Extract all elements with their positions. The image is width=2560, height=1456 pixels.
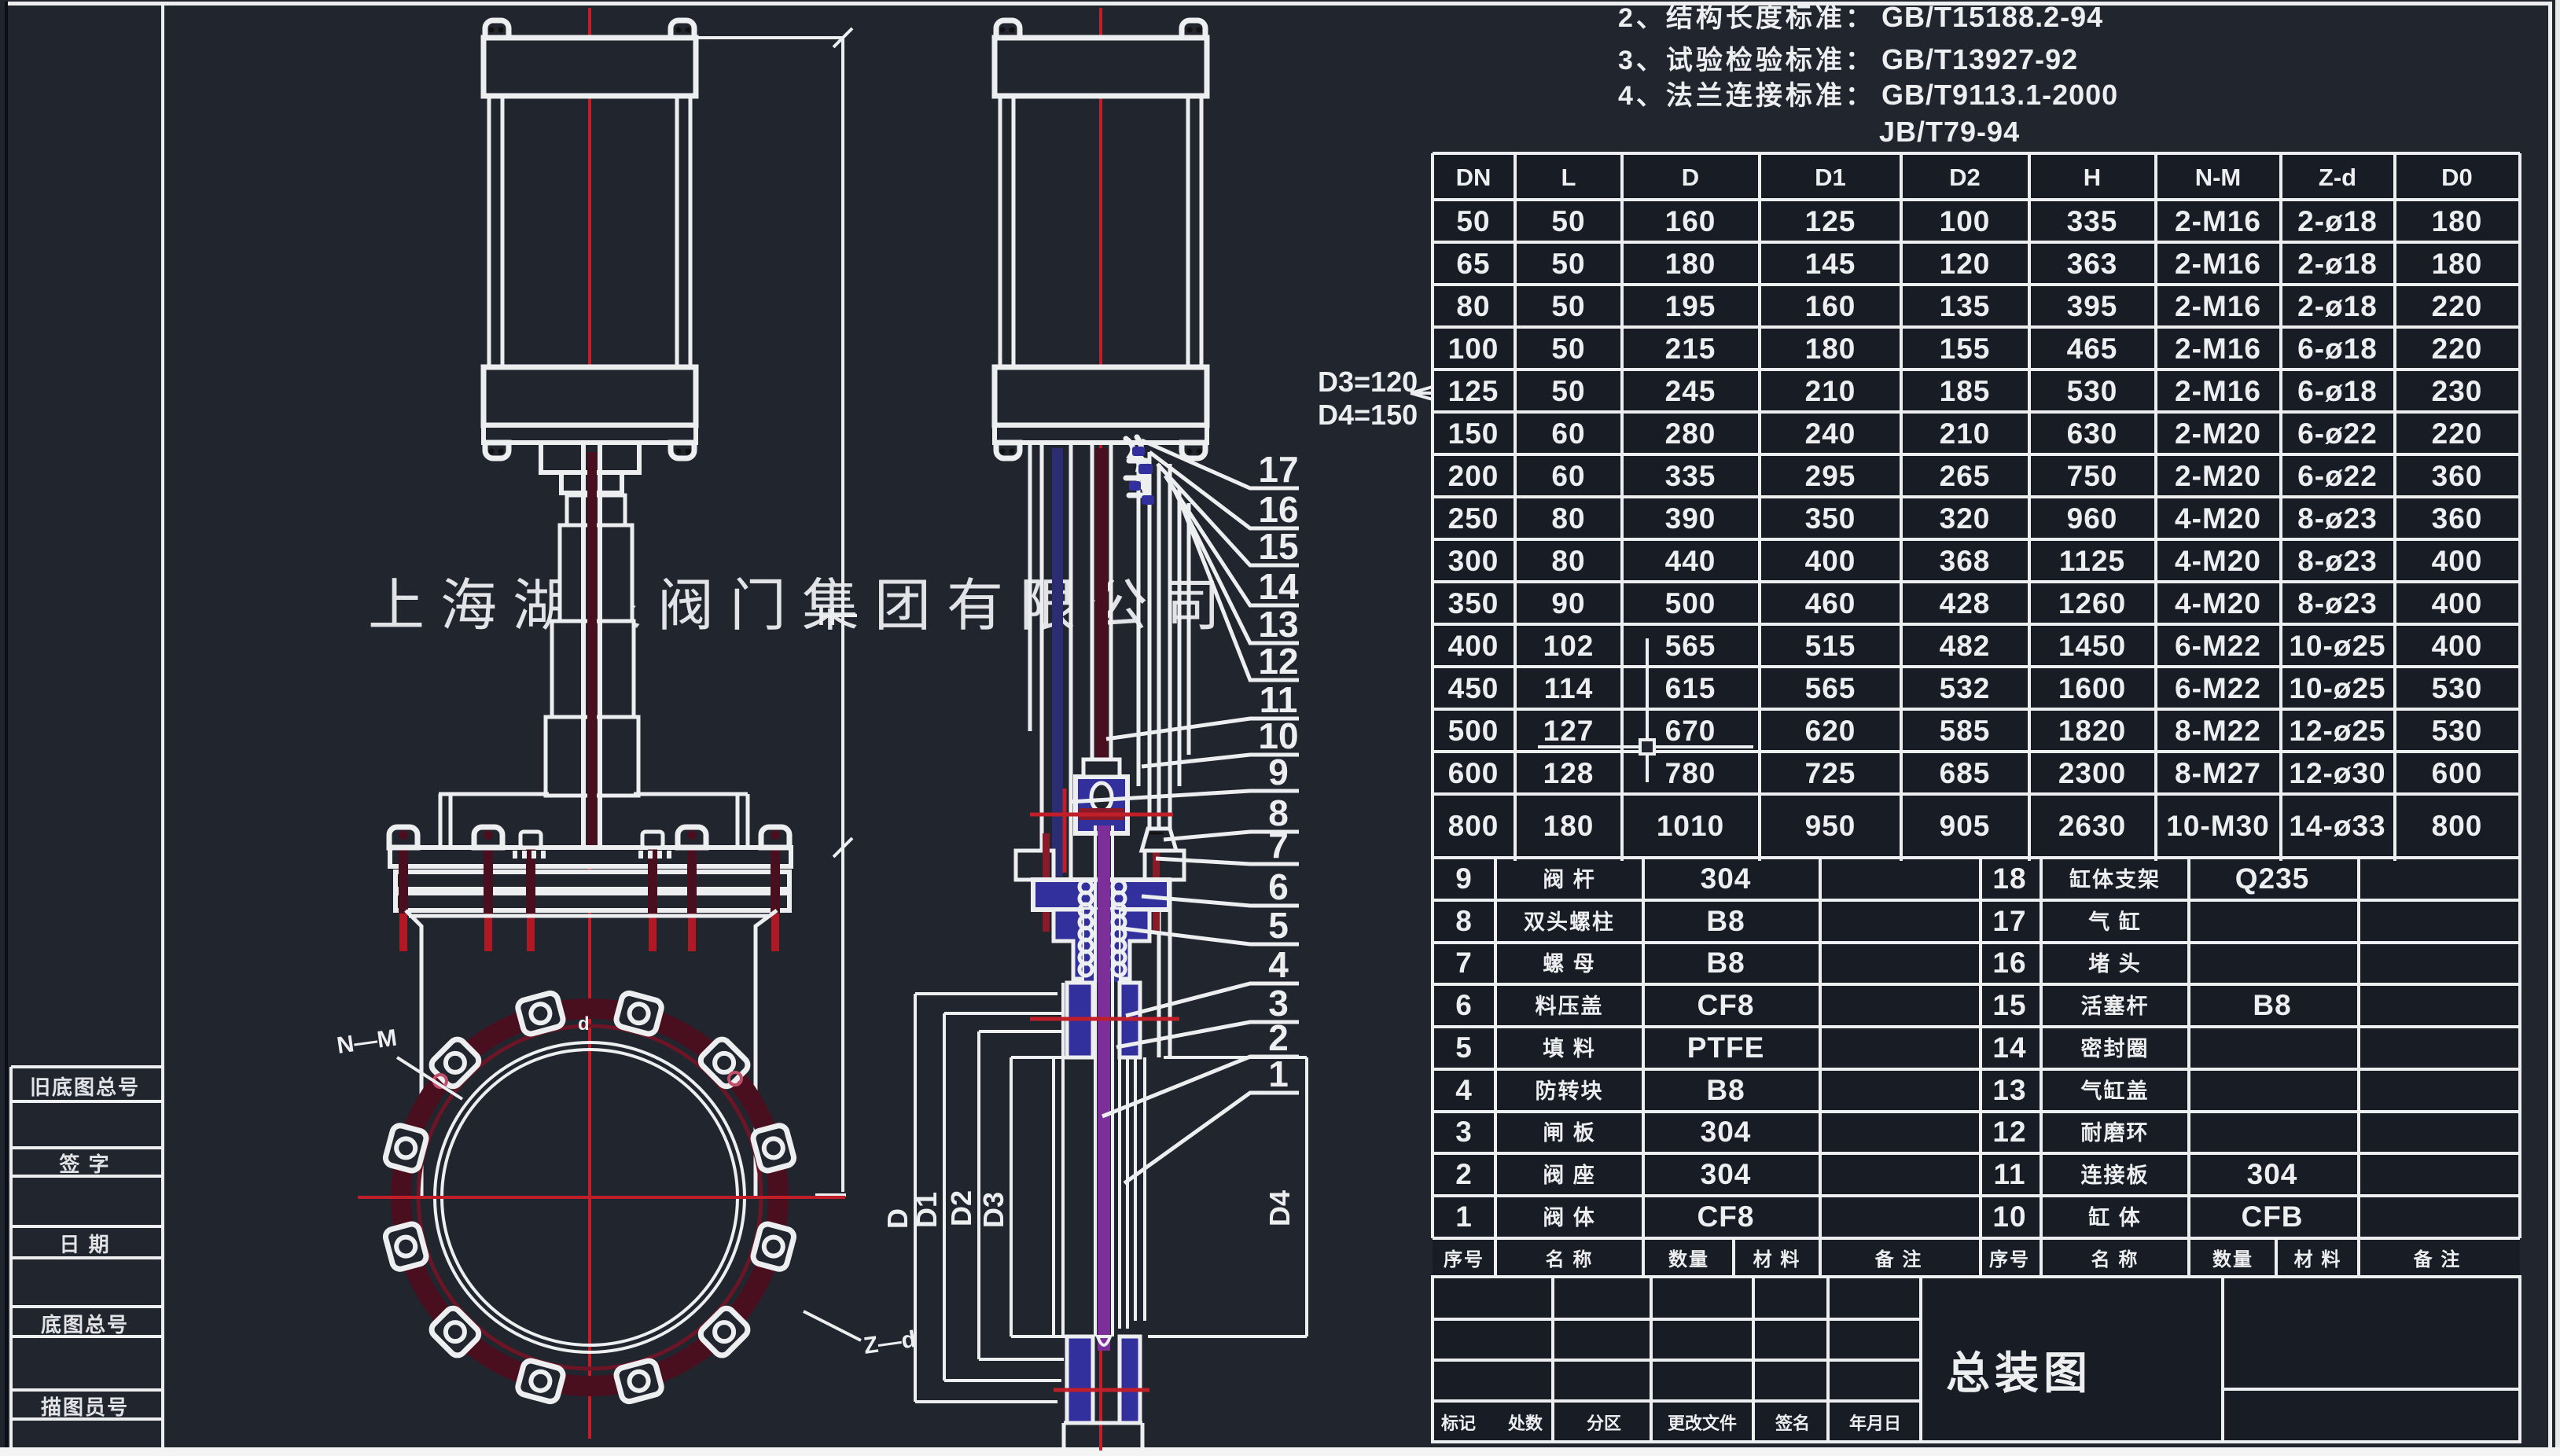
svg-text:B8: B8 [1706,947,1745,979]
svg-text:390: 390 [1665,502,1716,535]
svg-text:8-M22: 8-M22 [2175,715,2261,747]
svg-text:4: 4 [1455,1074,1473,1106]
svg-text:160: 160 [1805,290,1856,322]
svg-text:335: 335 [1665,460,1716,492]
svg-text:活塞杆: 活塞杆 [2081,994,2150,1018]
svg-text:210: 210 [1805,375,1856,407]
svg-text:D3: D3 [977,1192,1010,1228]
svg-text:3: 3 [1455,1116,1473,1148]
svg-text:4-M20: 4-M20 [2175,545,2261,577]
svg-text:气 缸: 气 缸 [2087,910,2142,934]
svg-text:50: 50 [1456,205,1490,237]
svg-text:6: 6 [1268,866,1289,907]
svg-text:1: 1 [1455,1200,1473,1233]
svg-text:4-M20: 4-M20 [2175,502,2261,535]
svg-text:125: 125 [1448,375,1499,407]
svg-text:60: 60 [1551,417,1585,450]
svg-text:年月日: 年月日 [1849,1414,1901,1433]
svg-text:处数: 处数 [1507,1414,1543,1433]
svg-text:160: 160 [1665,205,1716,237]
svg-text:双头螺柱: 双头螺柱 [1524,910,1615,934]
svg-text:120: 120 [1940,248,1991,280]
svg-text:填 料: 填 料 [1543,1037,1596,1061]
svg-text:565: 565 [1665,630,1716,662]
svg-text:8-M27: 8-M27 [2175,757,2261,789]
svg-text:565: 565 [1805,672,1856,704]
svg-text:800: 800 [1448,810,1499,842]
svg-text:数量: 数量 [2212,1249,2253,1270]
svg-text:905: 905 [1940,810,1991,842]
svg-text:685: 685 [1940,757,1991,789]
svg-text:800: 800 [2432,810,2483,842]
svg-text:2-ø18: 2-ø18 [2297,248,2378,280]
svg-text:515: 515 [1805,630,1856,662]
svg-text:80: 80 [1551,502,1585,535]
svg-text:12-ø25: 12-ø25 [2289,715,2385,747]
svg-text:265: 265 [1940,460,1991,492]
svg-text:750: 750 [2067,460,2118,492]
svg-text:428: 428 [1940,587,1991,620]
svg-text:2-M16: 2-M16 [2175,375,2261,407]
svg-text:1450: 1450 [2058,630,2126,662]
svg-text:180: 180 [1665,248,1716,280]
svg-text:3、试验检验标准：: 3、试验检验标准： [1618,45,1875,75]
svg-text:600: 600 [1448,757,1499,789]
svg-text:135: 135 [1940,290,1991,322]
svg-text:12: 12 [1258,641,1298,682]
svg-text:D: D [881,1208,914,1229]
svg-text:L: L [1561,164,1576,191]
svg-text:Q235: Q235 [2235,862,2310,895]
svg-text:B8: B8 [1706,1074,1745,1106]
svg-text:482: 482 [1940,630,1991,662]
svg-text:底图总号: 底图总号 [41,1313,129,1337]
svg-text:B8: B8 [1706,905,1745,937]
svg-text:125: 125 [1805,205,1856,237]
svg-text:350: 350 [1448,587,1499,620]
svg-text:395: 395 [2067,290,2118,322]
svg-text:GB/T15188.2-94: GB/T15188.2-94 [1881,1,2103,33]
svg-text:D4: D4 [1263,1190,1296,1226]
svg-text:10-M30: 10-M30 [2166,810,2269,842]
svg-text:368: 368 [1940,545,1991,577]
svg-text:2-M16: 2-M16 [2175,333,2261,365]
svg-text:320: 320 [1940,502,1991,535]
svg-text:950: 950 [1805,810,1856,842]
svg-text:缸体支架: 缸体支架 [2069,867,2161,892]
svg-text:签 字: 签 字 [59,1153,110,1176]
svg-text:1125: 1125 [2059,545,2125,577]
svg-text:155: 155 [1940,333,1991,365]
svg-text:65: 65 [1456,248,1490,280]
svg-text:4-M20: 4-M20 [2175,587,2261,620]
svg-text:195: 195 [1665,290,1716,322]
svg-text:数量: 数量 [1668,1249,1709,1270]
svg-text:100: 100 [1448,333,1499,365]
svg-text:14: 14 [1992,1031,2026,1064]
svg-text:耐磨环: 耐磨环 [2081,1121,2150,1145]
svg-text:2-M16: 2-M16 [2175,248,2261,280]
svg-text:400: 400 [2432,545,2483,577]
svg-text:4、法兰连接标准：: 4、法兰连接标准： [1618,81,1875,111]
svg-text:12: 12 [1992,1116,2026,1148]
svg-text:50: 50 [1551,375,1585,407]
svg-text:分区: 分区 [1587,1414,1621,1433]
svg-text:11: 11 [1993,1158,2025,1190]
svg-text:250: 250 [1448,502,1499,535]
svg-text:360: 360 [2432,460,2483,492]
svg-text:90: 90 [1551,587,1585,620]
svg-text:序号: 序号 [1444,1248,1484,1270]
svg-text:2-M16: 2-M16 [2175,205,2261,237]
svg-text:2630: 2630 [2058,810,2126,842]
svg-text:6-ø18: 6-ø18 [2297,333,2378,365]
svg-text:14-ø33: 14-ø33 [2289,810,2385,842]
svg-text:530: 530 [2432,672,2483,704]
svg-text:670: 670 [1665,715,1716,747]
svg-text:1: 1 [1268,1053,1289,1094]
svg-text:GB/T13927-92: GB/T13927-92 [1881,43,2078,75]
svg-text:6-M22: 6-M22 [2175,630,2261,662]
svg-text:CFB: CFB [2241,1200,2303,1233]
svg-text:D2: D2 [1949,164,1981,191]
svg-text:缸 体: 缸 体 [2088,1205,2142,1230]
svg-text:阀 体: 阀 体 [1543,1206,1596,1230]
svg-text:8-ø23: 8-ø23 [2297,545,2378,577]
svg-text:密封圈: 密封圈 [2081,1036,2150,1061]
svg-text:2-M20: 2-M20 [2175,417,2261,450]
svg-text:5: 5 [1268,905,1289,946]
svg-text:10-ø25: 10-ø25 [2289,630,2385,662]
svg-text:180: 180 [2432,205,2483,237]
svg-text:D3=120: D3=120 [1318,366,1418,398]
svg-text:220: 220 [2432,333,2483,365]
svg-text:230: 230 [2432,375,2483,407]
svg-text:11: 11 [1260,679,1298,720]
svg-text:335: 335 [2067,205,2118,237]
svg-text:D1: D1 [1815,164,1846,191]
svg-text:50: 50 [1551,290,1585,322]
svg-text:描图员号: 描图员号 [41,1395,129,1419]
svg-text:堵 头: 堵 头 [2088,952,2142,976]
svg-text:245: 245 [1665,375,1716,407]
svg-text:400: 400 [2432,630,2483,662]
svg-text:4: 4 [1268,944,1289,985]
svg-text:18: 18 [1992,862,2026,895]
svg-text:备 注: 备 注 [1874,1248,1923,1270]
svg-text:JB/T79-94: JB/T79-94 [1879,116,2020,148]
svg-text:220: 220 [2432,417,2483,450]
svg-text:总装图: 总装图 [1946,1348,2092,1398]
svg-text:9: 9 [1455,862,1473,895]
svg-text:360: 360 [2432,502,2483,535]
svg-text:363: 363 [2067,248,2118,280]
svg-text:D1: D1 [910,1192,943,1228]
svg-text:6-ø22: 6-ø22 [2297,460,2378,492]
svg-text:7: 7 [1268,825,1289,866]
svg-text:102: 102 [1543,630,1594,662]
svg-text:名 称: 名 称 [1546,1248,1594,1270]
svg-text:阀 座: 阀 座 [1543,1163,1596,1187]
svg-text:215: 215 [1665,333,1716,365]
svg-text:128: 128 [1543,757,1594,789]
svg-text:6-ø18: 6-ø18 [2297,375,2378,407]
svg-text:1260: 1260 [2058,587,2126,620]
svg-text:295: 295 [1805,460,1856,492]
svg-text:280: 280 [1665,417,1716,450]
svg-text:600: 600 [2432,757,2483,789]
svg-text:1010: 1010 [1657,810,1724,842]
svg-text:D2: D2 [945,1190,977,1226]
svg-text:304: 304 [2247,1158,2298,1190]
svg-text:CF8: CF8 [1697,1200,1755,1233]
svg-text:400: 400 [1448,630,1499,662]
svg-text:465: 465 [2067,333,2118,365]
svg-text:日 期: 日 期 [59,1233,110,1256]
svg-text:210: 210 [1940,417,1991,450]
svg-text:50: 50 [1551,248,1585,280]
svg-text:150: 150 [1448,417,1499,450]
svg-text:17: 17 [1992,905,2026,937]
svg-text:14: 14 [1258,566,1299,607]
svg-text:9: 9 [1268,752,1289,792]
svg-text:气缸盖: 气缸盖 [2080,1079,2150,1103]
svg-text:备 注: 备 注 [2413,1248,2462,1270]
svg-text:防转块: 防转块 [1536,1079,1604,1103]
svg-text:16: 16 [1992,947,2026,979]
svg-text:185: 185 [1940,375,1991,407]
svg-text:D: D [1682,164,1699,191]
svg-text:725: 725 [1805,757,1856,789]
svg-text:2: 2 [1268,1017,1289,1058]
svg-text:16: 16 [1258,489,1298,530]
svg-text:180: 180 [1805,333,1856,365]
svg-text:名 称: 名 称 [2091,1248,2139,1270]
svg-text:400: 400 [2432,587,2483,620]
svg-text:1600: 1600 [2058,672,2126,704]
svg-text:2300: 2300 [2058,757,2126,789]
svg-text:8: 8 [1455,905,1473,937]
svg-text:620: 620 [1805,715,1856,747]
svg-text:585: 585 [1940,715,1991,747]
svg-text:2: 2 [1455,1158,1473,1190]
svg-text:GB/T9113.1-2000: GB/T9113.1-2000 [1881,79,2118,111]
svg-text:50: 50 [1551,205,1585,237]
svg-text:10-ø25: 10-ø25 [2289,672,2385,704]
svg-text:304: 304 [1701,1158,1752,1190]
svg-text:D4=150: D4=150 [1318,399,1418,431]
svg-text:460: 460 [1805,587,1856,620]
svg-text:100: 100 [1940,205,1991,237]
svg-text:440: 440 [1665,545,1716,577]
svg-text:标记: 标记 [1441,1414,1476,1433]
svg-text:50: 50 [1551,333,1585,365]
svg-text:60: 60 [1551,460,1585,492]
svg-text:532: 532 [1940,672,1991,704]
svg-text:127: 127 [1543,715,1594,747]
svg-text:500: 500 [1665,587,1716,620]
svg-text:304: 304 [1701,862,1752,895]
svg-text:旧底图总号: 旧底图总号 [30,1075,140,1099]
svg-text:2-ø18: 2-ø18 [2297,205,2378,237]
svg-text:B8: B8 [2253,989,2291,1021]
svg-text:2、结构长度标准：: 2、结构长度标准： [1618,3,1875,33]
svg-text:15: 15 [1258,526,1298,567]
svg-text:530: 530 [2432,715,2483,747]
svg-text:145: 145 [1805,248,1856,280]
svg-text:530: 530 [2067,375,2118,407]
svg-text:13: 13 [1992,1074,2026,1106]
svg-text:304: 304 [1701,1116,1752,1148]
svg-text:240: 240 [1805,417,1856,450]
svg-text:签名: 签名 [1775,1414,1810,1433]
svg-text:Z-d: Z-d [2319,164,2356,191]
svg-text:8-ø23: 8-ø23 [2297,587,2378,620]
svg-text:阀 杆: 阀 杆 [1543,868,1596,892]
svg-text:2-M20: 2-M20 [2175,460,2261,492]
svg-text:材 料: 材 料 [2294,1249,2342,1270]
svg-text:1820: 1820 [2058,715,2126,747]
svg-text:180: 180 [1543,810,1594,842]
svg-text:200: 200 [1448,460,1499,492]
svg-text:闸 板: 闸 板 [1543,1121,1596,1145]
svg-text:10: 10 [1992,1200,2026,1233]
svg-text:80: 80 [1551,545,1585,577]
svg-text:6-M22: 6-M22 [2175,672,2261,704]
svg-text:5: 5 [1455,1031,1473,1064]
svg-text:2-M16: 2-M16 [2175,290,2261,322]
svg-text:D0: D0 [2441,164,2473,191]
svg-text:780: 780 [1665,757,1716,789]
svg-text:8-ø23: 8-ø23 [2297,502,2378,535]
svg-text:960: 960 [2067,502,2118,535]
svg-text:6-ø22: 6-ø22 [2297,417,2378,450]
svg-text:连接板: 连接板 [2081,1163,2150,1187]
svg-text:450: 450 [1448,672,1499,704]
svg-text:PTFE: PTFE [1687,1031,1765,1064]
svg-text:15: 15 [1992,989,2026,1021]
svg-text:材 料: 材 料 [1753,1249,1801,1270]
svg-text:N-M: N-M [2195,164,2242,191]
svg-text:更改文件: 更改文件 [1668,1414,1737,1433]
svg-text:220: 220 [2432,290,2483,322]
svg-text:6: 6 [1455,989,1473,1021]
svg-text:180: 180 [2432,248,2483,280]
svg-text:350: 350 [1805,502,1856,535]
svg-text:螺 母: 螺 母 [1543,952,1596,976]
svg-text:114: 114 [1544,672,1594,704]
svg-text:料压盖: 料压盖 [1536,995,1604,1018]
svg-text:615: 615 [1665,672,1716,704]
svg-text:d: d [578,1013,590,1035]
svg-text:12-ø30: 12-ø30 [2289,757,2385,789]
svg-text:H: H [2084,164,2101,191]
svg-text:10: 10 [1258,715,1298,756]
svg-text:7: 7 [1455,947,1473,979]
svg-text:2-ø18: 2-ø18 [2297,290,2378,322]
svg-text:80: 80 [1456,290,1490,322]
svg-text:CF8: CF8 [1697,989,1755,1021]
svg-text:630: 630 [2067,417,2118,450]
svg-text:500: 500 [1448,715,1499,747]
svg-text:400: 400 [1805,545,1856,577]
svg-text:17: 17 [1258,449,1298,490]
svg-text:DN: DN [1456,164,1491,191]
svg-text:13: 13 [1258,604,1298,645]
svg-text:序号: 序号 [1989,1248,2030,1270]
svg-text:300: 300 [1448,545,1499,577]
